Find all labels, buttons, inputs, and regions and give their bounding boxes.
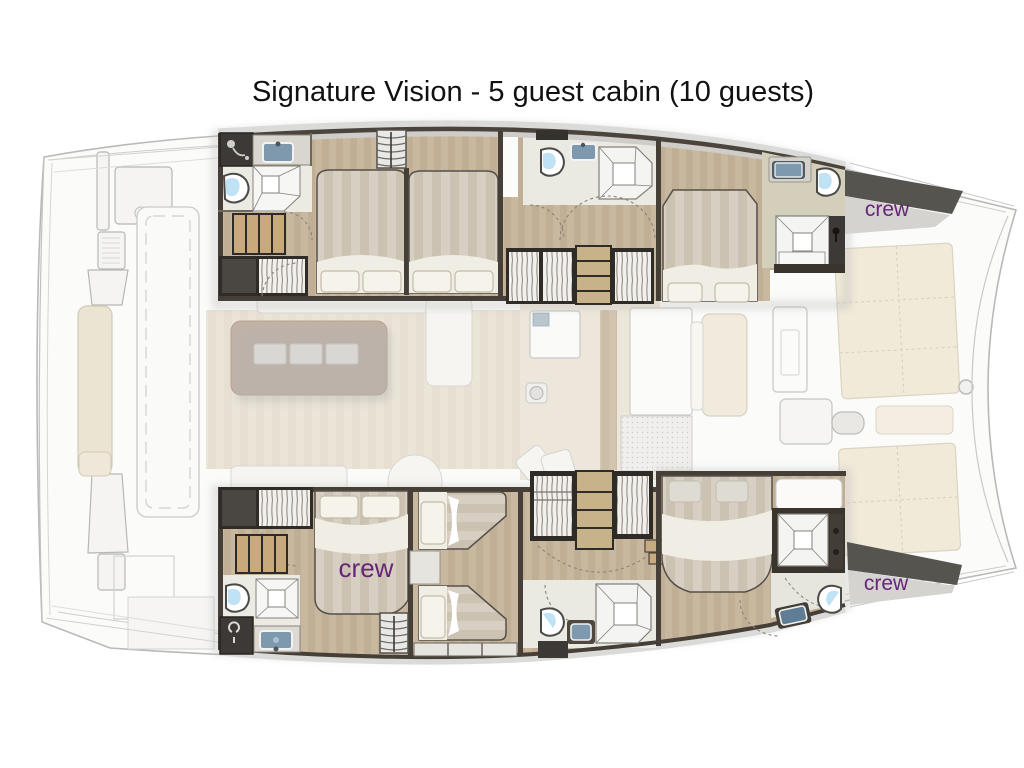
svg-text:crew: crew [865,198,910,221]
svg-text:Signature Vision - 5 guest cab: Signature Vision - 5 guest cabin (10 gue… [252,76,814,108]
svg-text:crew: crew [864,572,909,595]
svg-text:crew: crew [339,553,394,583]
